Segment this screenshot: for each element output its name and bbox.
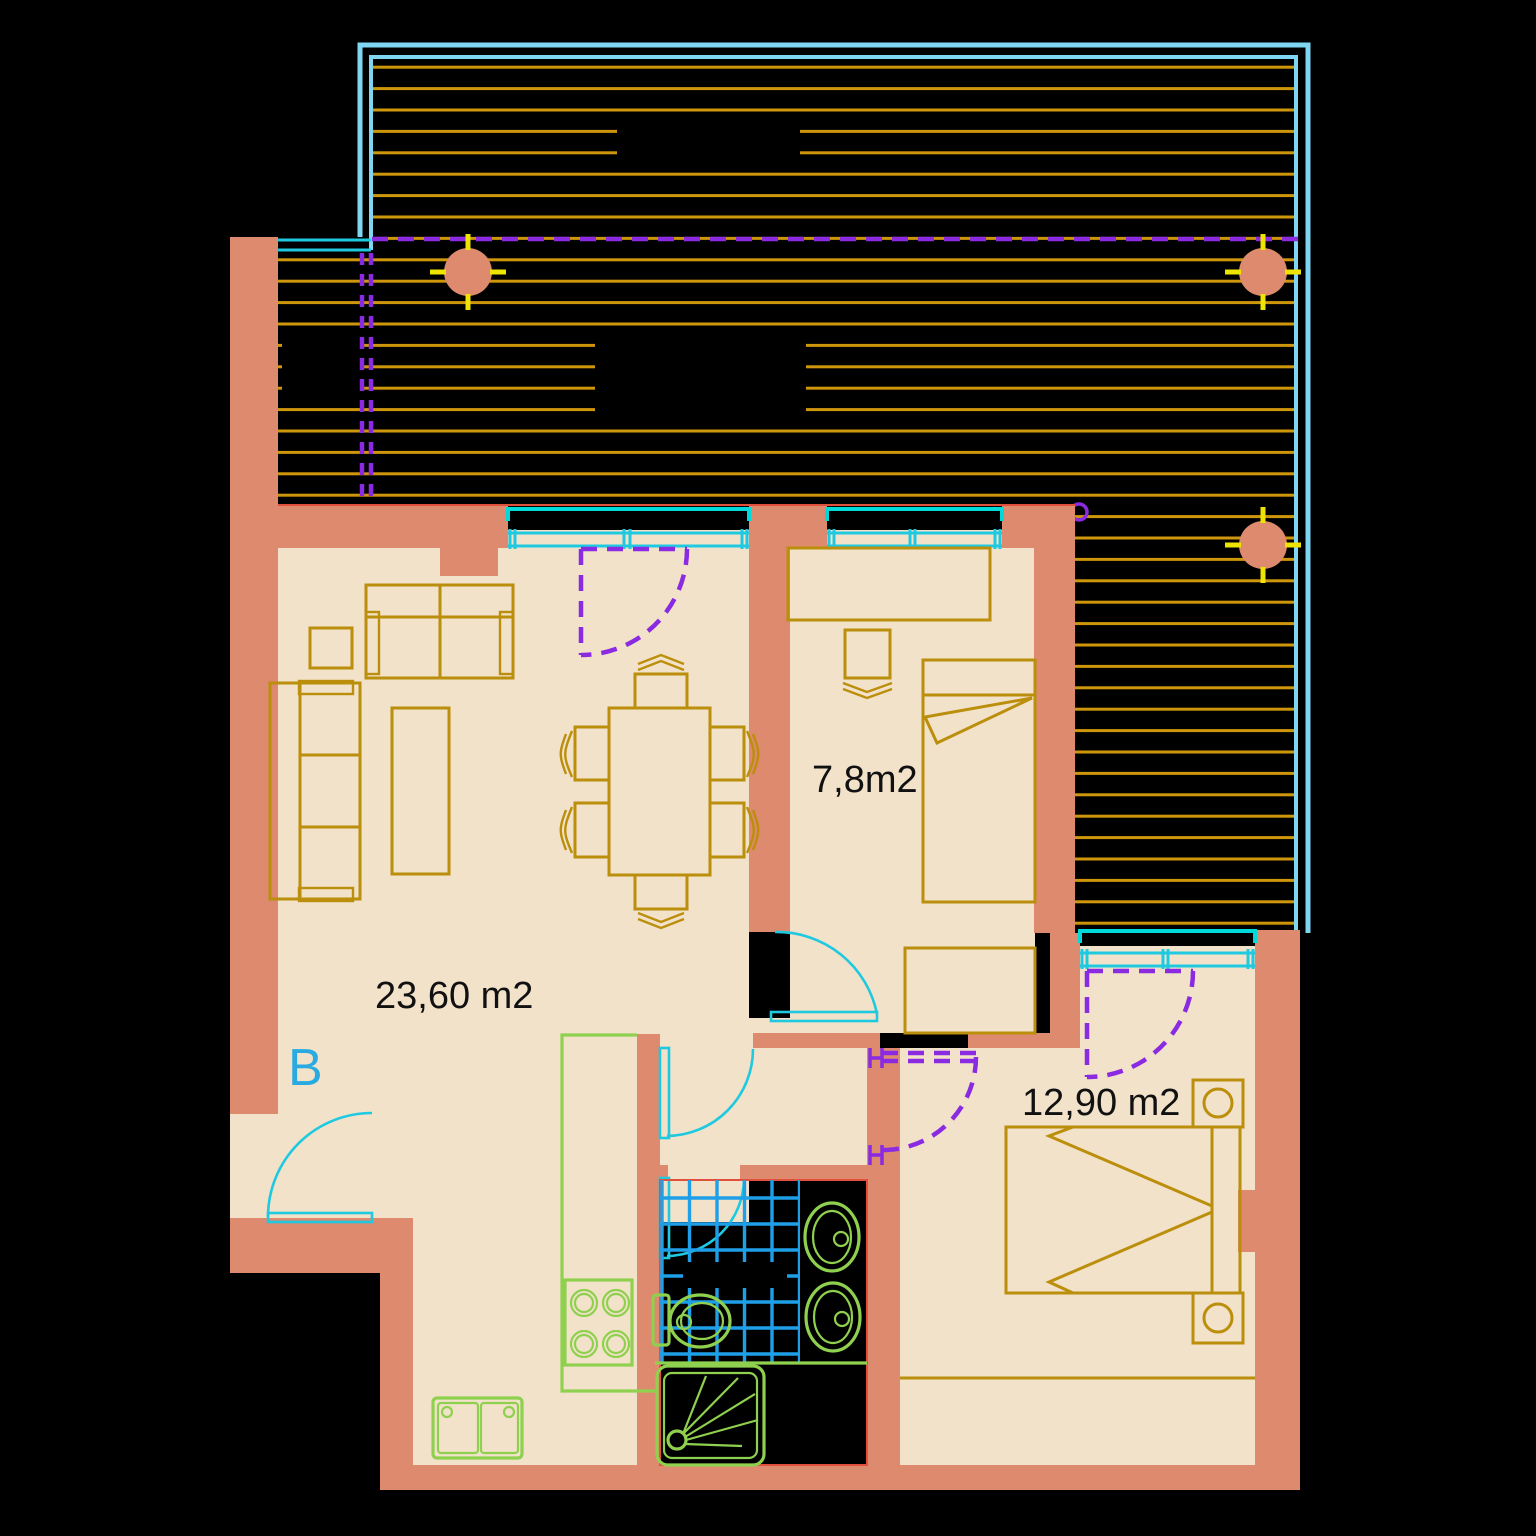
- terrace-hatch-top: [372, 58, 1295, 505]
- sink: [805, 1203, 859, 1271]
- room-label-main-bedroom: 12,90 m2: [1022, 1082, 1180, 1124]
- terrace-label-mask: [595, 343, 806, 421]
- wall-top-left: [278, 505, 508, 548]
- floor-plan-page: 23,60 m2 7,8m2 12,90 m2 B: [0, 0, 1536, 1536]
- floor-kitchen: [413, 1222, 655, 1465]
- wall-top-right: [1002, 505, 1075, 548]
- wall-right: [1255, 930, 1300, 1490]
- terrace-label-mask: [617, 118, 800, 170]
- wall-vestibule-left: [637, 1034, 660, 1177]
- wall-bottom: [380, 1465, 1300, 1490]
- floor-entry: [230, 1114, 278, 1218]
- wall-bedroom-pier-left: [1050, 933, 1080, 1048]
- sink: [806, 1283, 860, 1351]
- wall-hall-2: [968, 1033, 1080, 1048]
- room-label-small-bedroom: 7,8m2: [812, 759, 918, 801]
- unit-label: B: [288, 1039, 323, 1097]
- wall-bath-bedroom: [867, 1048, 900, 1465]
- wall-kitchen-left: [380, 1218, 413, 1490]
- wall-small-right: [1034, 548, 1075, 933]
- wall-window-pier: [749, 505, 827, 548]
- wall-bath-top: [740, 1165, 867, 1180]
- wall-left: [230, 237, 278, 1114]
- bathroom-label-mask: [683, 1262, 787, 1288]
- shower: [657, 1366, 764, 1465]
- room-label-living: 23,60 m2: [375, 975, 533, 1017]
- terrace-label-mask: [282, 341, 362, 402]
- floor-plan-drawing: 23,60 m2 7,8m2 12,90 m2 B: [0, 0, 1536, 1536]
- bathroom: [653, 1180, 867, 1465]
- wall-pier-stub: [440, 548, 498, 576]
- wall-hall-1: [753, 1033, 880, 1048]
